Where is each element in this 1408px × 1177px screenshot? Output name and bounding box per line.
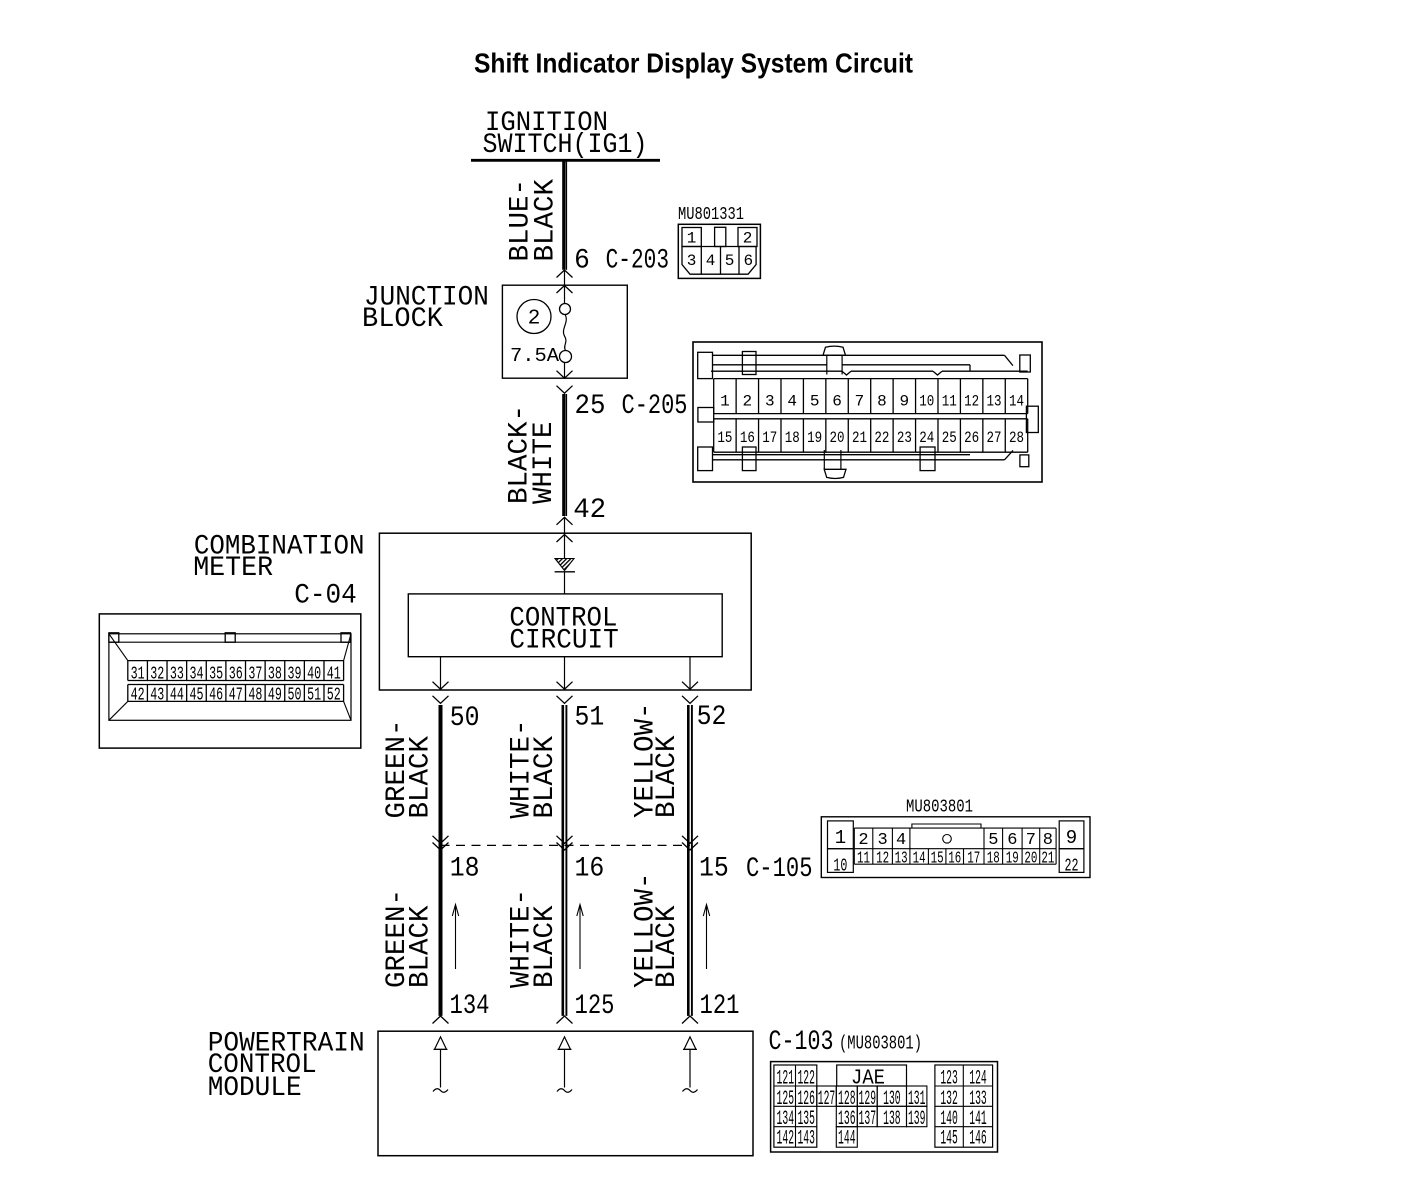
svg-text:3: 3 — [877, 831, 887, 850]
svg-text:33: 33 — [170, 665, 184, 685]
svg-text:49: 49 — [268, 686, 282, 706]
svg-text:JAE: JAE — [851, 1067, 885, 1090]
svg-text:MODULE: MODULE — [208, 1073, 302, 1104]
svg-text:METER: METER — [193, 553, 273, 584]
svg-text:36: 36 — [229, 665, 243, 685]
svg-text:1: 1 — [720, 393, 730, 411]
svg-text:51: 51 — [307, 686, 321, 706]
svg-text:C-205: C-205 — [622, 391, 688, 422]
svg-text:10: 10 — [919, 393, 934, 411]
svg-text:23: 23 — [897, 429, 912, 447]
svg-text:15: 15 — [699, 854, 729, 885]
svg-text:17: 17 — [762, 429, 777, 447]
svg-text:12: 12 — [876, 850, 889, 869]
svg-text:39: 39 — [288, 665, 302, 685]
svg-text:121: 121 — [700, 991, 740, 1022]
svg-text:4: 4 — [896, 831, 906, 850]
svg-text:2: 2 — [743, 393, 753, 411]
svg-text:7: 7 — [1026, 831, 1036, 850]
svg-text:CIRCUIT: CIRCUIT — [509, 626, 618, 657]
svg-text:3: 3 — [687, 252, 697, 270]
svg-text:22: 22 — [874, 429, 889, 447]
svg-text:144: 144 — [838, 1128, 856, 1151]
svg-text:SWITCH(IG1): SWITCH(IG1) — [483, 130, 648, 161]
svg-text:42: 42 — [131, 686, 145, 706]
svg-text:11: 11 — [857, 850, 870, 869]
svg-text:6: 6 — [743, 252, 753, 270]
svg-text:52: 52 — [327, 686, 341, 706]
svg-text:BLOCK: BLOCK — [362, 304, 443, 335]
svg-text:17: 17 — [967, 850, 980, 869]
svg-text:BLACK: BLACK — [652, 905, 683, 988]
svg-text:145: 145 — [940, 1128, 958, 1151]
svg-text:20: 20 — [1024, 850, 1037, 869]
svg-text:134: 134 — [450, 991, 490, 1022]
svg-text:44: 44 — [170, 686, 184, 706]
svg-text:2: 2 — [858, 831, 868, 850]
svg-text:5: 5 — [725, 252, 735, 270]
svg-text:37: 37 — [248, 665, 262, 685]
svg-text:16: 16 — [948, 850, 961, 869]
svg-text:32: 32 — [150, 665, 164, 685]
svg-text:26: 26 — [964, 429, 979, 447]
svg-text:WHITE: WHITE — [529, 421, 560, 504]
svg-text:22: 22 — [1065, 857, 1079, 877]
svg-text:19: 19 — [807, 429, 822, 447]
svg-text:41: 41 — [327, 665, 341, 685]
svg-text:45: 45 — [189, 686, 203, 706]
svg-text:8: 8 — [877, 393, 887, 411]
svg-text:C-103: C-103 — [769, 1027, 834, 1058]
svg-text:46: 46 — [209, 686, 223, 706]
svg-text:34: 34 — [189, 665, 203, 685]
svg-text:1: 1 — [835, 827, 846, 849]
svg-text:7.5A: 7.5A — [510, 345, 560, 367]
svg-text:9: 9 — [1066, 827, 1077, 849]
svg-text:123: 123 — [940, 1067, 958, 1090]
svg-text:125: 125 — [575, 991, 615, 1022]
svg-text:15: 15 — [931, 850, 944, 869]
svg-text:21: 21 — [852, 429, 867, 447]
svg-text:35: 35 — [209, 665, 223, 685]
svg-text:16: 16 — [740, 429, 755, 447]
svg-text:(MU803801): (MU803801) — [839, 1033, 922, 1055]
svg-text:124: 124 — [969, 1067, 987, 1090]
svg-text:BLACK: BLACK — [652, 735, 683, 818]
svg-text:14: 14 — [1009, 393, 1024, 411]
svg-text:47: 47 — [229, 686, 243, 706]
svg-text:2: 2 — [528, 308, 541, 331]
svg-text:51: 51 — [575, 703, 605, 734]
svg-text:24: 24 — [919, 429, 934, 447]
svg-text:4: 4 — [787, 393, 797, 411]
svg-text:Shift Indicator Display System: Shift Indicator Display System Circuit — [474, 48, 913, 79]
svg-text:10: 10 — [833, 857, 847, 877]
svg-text:MU803801: MU803801 — [906, 798, 973, 818]
svg-text:2: 2 — [743, 230, 753, 248]
svg-text:8: 8 — [1043, 831, 1053, 850]
svg-text:127: 127 — [818, 1088, 836, 1111]
svg-text:BLACK: BLACK — [406, 735, 437, 818]
svg-text:1: 1 — [687, 230, 697, 248]
svg-text:138: 138 — [883, 1108, 901, 1131]
svg-text:28: 28 — [1009, 429, 1024, 447]
svg-text:40: 40 — [307, 665, 321, 685]
svg-text:4: 4 — [706, 252, 716, 270]
svg-text:BLACK: BLACK — [406, 905, 437, 988]
svg-text:146: 146 — [969, 1128, 987, 1151]
svg-text:15: 15 — [717, 429, 732, 447]
svg-text:18: 18 — [987, 850, 1000, 869]
svg-text:122: 122 — [797, 1067, 815, 1090]
svg-text:42: 42 — [573, 495, 606, 526]
svg-text:5: 5 — [810, 393, 820, 411]
svg-text:7: 7 — [855, 393, 865, 411]
svg-text:13: 13 — [895, 850, 908, 869]
svg-text:12: 12 — [964, 393, 979, 411]
svg-text:14: 14 — [913, 850, 926, 869]
svg-text:C-04: C-04 — [294, 581, 357, 612]
svg-text:13: 13 — [987, 393, 1002, 411]
svg-text:6: 6 — [1007, 831, 1017, 850]
svg-text:C-105: C-105 — [746, 854, 813, 885]
svg-text:50: 50 — [288, 686, 302, 706]
svg-text:21: 21 — [1041, 850, 1054, 869]
svg-text:6: 6 — [832, 393, 842, 411]
svg-text:143: 143 — [797, 1128, 815, 1151]
svg-text:16: 16 — [575, 854, 605, 885]
svg-text:27: 27 — [987, 429, 1002, 447]
svg-text:11: 11 — [942, 393, 957, 411]
svg-text:BLACK: BLACK — [530, 905, 561, 988]
svg-text:BLACK: BLACK — [531, 178, 562, 261]
svg-text:142: 142 — [777, 1128, 795, 1151]
svg-text:48: 48 — [248, 686, 262, 706]
svg-text:38: 38 — [268, 665, 282, 685]
svg-text:BLACK: BLACK — [530, 735, 561, 818]
svg-text:C-203: C-203 — [606, 246, 669, 277]
svg-text:18: 18 — [450, 854, 480, 885]
svg-text:20: 20 — [830, 429, 845, 447]
svg-text:19: 19 — [1006, 850, 1019, 869]
svg-text:121: 121 — [777, 1067, 795, 1090]
svg-text:43: 43 — [150, 686, 164, 706]
svg-text:9: 9 — [900, 393, 910, 411]
svg-text:50: 50 — [450, 703, 480, 734]
svg-text:137: 137 — [859, 1108, 877, 1131]
svg-text:25: 25 — [942, 429, 957, 447]
svg-text:31: 31 — [131, 665, 145, 685]
svg-text:52: 52 — [697, 702, 727, 733]
svg-text:3: 3 — [765, 393, 775, 411]
svg-text:18: 18 — [785, 429, 800, 447]
svg-text:139: 139 — [908, 1108, 926, 1131]
svg-text:MU801331: MU801331 — [678, 205, 744, 225]
svg-text:6: 6 — [574, 246, 590, 277]
svg-text:25: 25 — [575, 391, 606, 422]
svg-text:5: 5 — [988, 831, 998, 850]
